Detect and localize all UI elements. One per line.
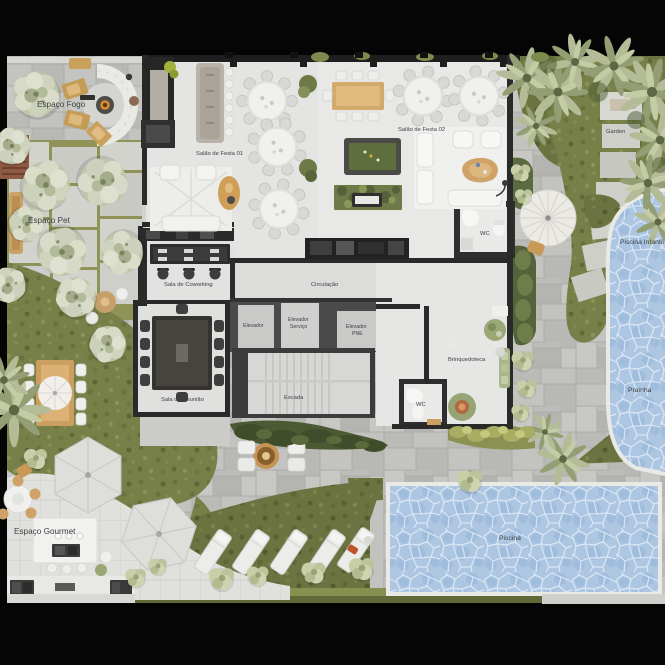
svg-text:Sala de Reunião: Sala de Reunião (161, 397, 204, 403)
svg-text:Serviço: Serviço (290, 324, 307, 330)
svg-text:Garden: Garden (606, 129, 625, 135)
svg-text:Circulação: Circulação (311, 282, 338, 288)
svg-text:Salão de Festa 01: Salão de Festa 01 (196, 151, 243, 157)
svg-text:Espaço Fogo: Espaço Fogo (37, 100, 86, 109)
svg-text:Prainha: Prainha (628, 387, 652, 394)
svg-text:Sala de Coworking: Sala de Coworking (164, 282, 213, 288)
svg-text:WC: WC (480, 231, 490, 237)
svg-text:Salão de Festa 02: Salão de Festa 02 (398, 127, 445, 133)
svg-text:PNE: PNE (352, 331, 363, 337)
svg-text:Piscina Infantil: Piscina Infantil (620, 239, 664, 246)
svg-text:Elevador: Elevador (288, 317, 309, 323)
svg-text:Brinquedoteca: Brinquedoteca (448, 357, 486, 363)
svg-text:Escada: Escada (284, 395, 304, 401)
svg-text:Piscina: Piscina (499, 535, 521, 542)
svg-text:Elevador: Elevador (346, 324, 367, 330)
svg-text:Elevador: Elevador (243, 323, 264, 329)
svg-text:Espaço Pet: Espaço Pet (28, 216, 71, 225)
svg-text:WC: WC (416, 402, 426, 408)
svg-text:Espaço Gourmet: Espaço Gourmet (14, 527, 76, 536)
